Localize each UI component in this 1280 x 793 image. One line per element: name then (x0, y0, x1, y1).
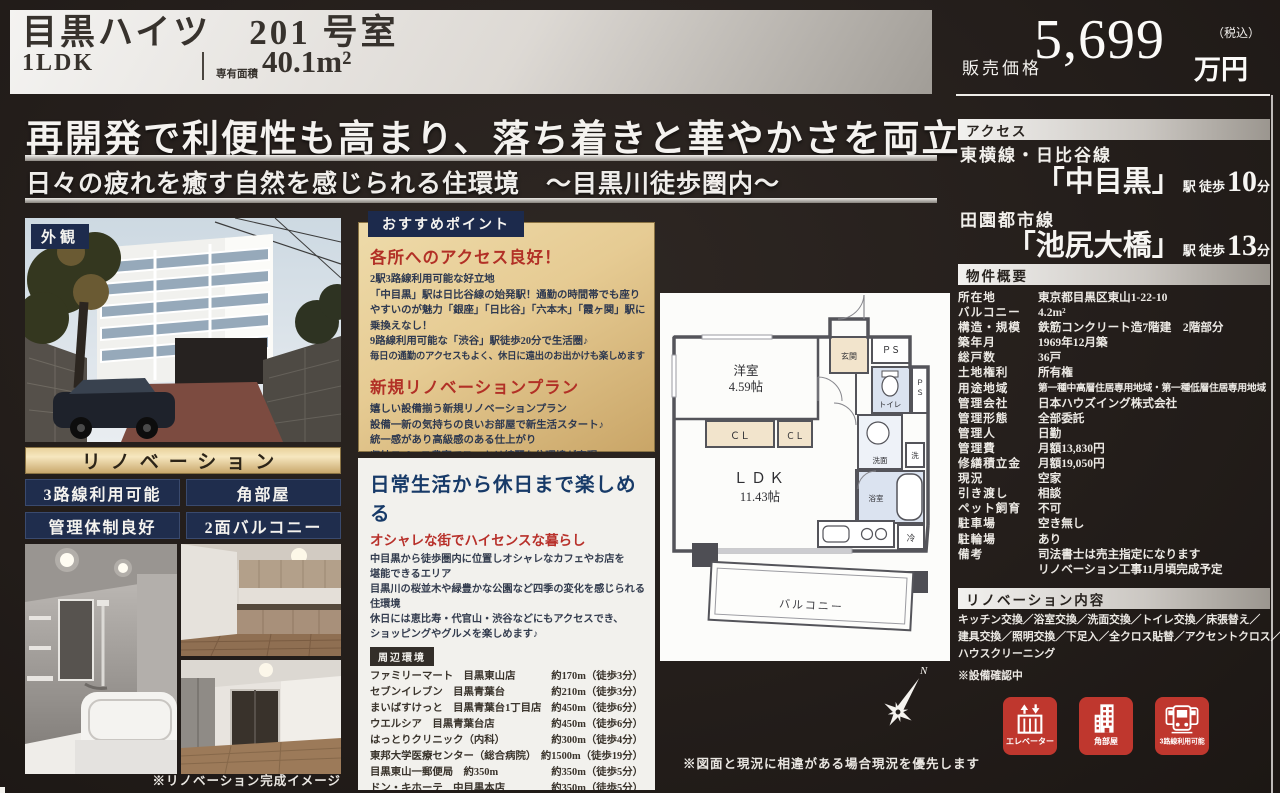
overview-row: 管理人 日勤 (958, 426, 1270, 441)
points-heading-access: 各所へのアクセス良好！ (370, 244, 643, 268)
nearby-row: ファミリーマート 目黒東山店 約170m（徒歩3分） (370, 669, 643, 685)
overview-row: 用途地域 第一種中高層住居専用地域・第一種低層住居専用地域 (958, 381, 1270, 396)
overview-row: 構造・規模 鉄筋コンクリート造7階建 2階部分 (958, 320, 1270, 335)
overview-value: 東京都目黒区東山1-22-10 (1038, 290, 1270, 305)
overview-row: 総戸数 36戸 (958, 350, 1270, 365)
points-tag: おすすめポイント (368, 211, 524, 237)
ldk-label: ＬＤＫ (733, 471, 787, 487)
feature-label: 角部屋 (1094, 736, 1118, 747)
points-line: 「中目黒」駅は日比谷線の始発駅！通勤の時間帯でも座り (370, 288, 643, 304)
overview-value: 36戸 (1038, 350, 1270, 365)
route-station-row: 「中目黒」 駅 徒歩 10 分 (958, 158, 1270, 200)
ldk-size: 11.43帖 (740, 489, 780, 504)
points-line: 統一感があり高級感のある仕上がり (370, 433, 643, 449)
corner-building-icon (1089, 702, 1123, 735)
nearby-row: ウエルシア 目黒青葉台店 約450m（徒歩6分） (370, 717, 643, 733)
bath-label: 浴室 (869, 493, 884, 503)
closet1-label: ＣＬ (730, 431, 750, 442)
overview-label: 総戸数 (958, 350, 1038, 365)
route-station-row: 「池尻大橋」 駅 徒歩 13 分 (958, 222, 1270, 264)
feature-label: エレベーター (1006, 736, 1054, 747)
overview-row: 土地権利 所有権 (958, 365, 1270, 380)
price-tax-note: （税込） (1212, 24, 1260, 41)
kitchen-photo (181, 544, 341, 656)
nearby-name: ウエルシア 目黒青葉台店 (370, 717, 551, 733)
overview-row: 管理費 月額13,830円 (958, 441, 1270, 456)
price-underline (956, 94, 1270, 96)
feature-badges: 3路線利用可能 角部屋 管理体制良好 2面バルコニー (25, 479, 341, 539)
feature-badge: 3路線利用可能 (25, 479, 180, 506)
overview-value: 司法書士は売主指定になります リノベーション工事11月頃完成予定 (1038, 547, 1270, 577)
elevator-icon (1013, 702, 1047, 735)
overview-label: 備考 (958, 547, 1038, 577)
scan-corner-artifact (0, 787, 5, 793)
overview-row: 駐車場 空き無し (958, 516, 1270, 531)
lifestyle-heading: 日常生活から休日まで楽しめる (370, 468, 643, 526)
points-lines-renovation: 嬉しい設備揃う新規リノベーションプラン設備一新の気持ちの良いお部屋で新生活スター… (370, 402, 643, 452)
nearby-row: はっとりクリニック（内科） 約300m（徒歩4分） (370, 733, 643, 749)
overview-row: 築年月 1969年12月築 (958, 335, 1270, 350)
overview-value: 月額13,830円 (1038, 441, 1270, 456)
overview-value: 鉄筋コンクリート造7階建 2階部分 (1038, 320, 1270, 335)
toilet-label: トイレ (879, 400, 902, 409)
lifestyle-subheading: オシャレな街でハイセンスな暮らし (370, 529, 643, 549)
scan-edge-artifact (1271, 95, 1273, 793)
bedroom-photo-illustration (181, 660, 341, 774)
overview-value: 空き無し (1038, 516, 1270, 531)
renovation-line: ※設備確認中 (958, 668, 1276, 685)
renovation-image-caption: ※リノベーション完成イメージ (150, 770, 341, 789)
points-line: 乗換えなし！ (370, 319, 643, 335)
overview-label: 土地権利 (958, 365, 1038, 380)
exterior-photo (25, 218, 341, 442)
overview-label: 管理人 (958, 426, 1038, 441)
feature-badge: 管理体制良好 (25, 512, 180, 539)
exterior-photo-illustration (25, 218, 341, 442)
flyer-page: 目黒ハイツ 201 号室 1LDK 専有面積 40.1m² 販売価格 5,699… (0, 0, 1280, 793)
feature-badge: 2面バルコニー (186, 512, 341, 539)
overview-label: 管理形態 (958, 411, 1038, 426)
overview-label: 用途地域 (958, 381, 1038, 396)
walk-unit: 分 (1257, 240, 1270, 259)
lifestyle-line: 住環境 (370, 597, 643, 612)
feature-corner-room: 角部屋 (1079, 697, 1133, 755)
renovation-lines: キッチン交換／浴室交換／洗面交換／トイレ交換／床張替え／建具交換／照明交換／下足… (958, 612, 1276, 685)
walk-unit: 分 (1257, 176, 1270, 195)
overview-label: 管理会社 (958, 396, 1038, 411)
ps2-label-s: Ｓ (916, 388, 924, 397)
lifestyle-line: 中目黒から徒歩圏内に位置しオシャレなカフェやお店を (370, 552, 643, 567)
closet2-label: ＣＬ (786, 431, 804, 441)
nearby-row: 目黒東山一郵便局 約350m 約350m（徒歩5分） (370, 765, 643, 781)
overview-value: 月額19,050円 (1038, 456, 1270, 471)
price-label: 販売価格 (962, 54, 1042, 79)
access-header: アクセス (958, 119, 1270, 140)
lifestyle-box: 日常生活から休日まで楽しめる オシャレな街でハイセンスな暮らし 中目黒から徒歩圏… (358, 458, 655, 790)
nearby-distance: 約350m（徒歩5分） (551, 765, 643, 781)
walk-label: 駅 徒歩 (1183, 240, 1225, 259)
overview-row: 管理会社 日本ハウズイング株式会社 (958, 396, 1270, 411)
points-line: 収納スペース豊富でスッキリ綺麗な住環境が実現 (370, 449, 643, 453)
renovation-line: 建具交換／照明交換／下足入／全クロス貼替／アクセントクロス／ (958, 629, 1276, 646)
overview-row: 現況 空家 (958, 471, 1270, 486)
nearby-name: セブンイレブン 目黒青葉台 (370, 685, 551, 701)
feature-icon-row: エレベーター 角部屋 (1003, 697, 1209, 755)
compass-icon: N (858, 660, 944, 748)
overview-label: 構造・規模 (958, 320, 1038, 335)
overview-value: 4.2m² (1038, 305, 1270, 320)
points-line: 嬉しい設備揃う新規リノベーションプラン (370, 402, 643, 418)
walk-label: 駅 徒歩 (1183, 176, 1225, 195)
overview-value: あり (1038, 532, 1270, 547)
feature-three-lines: 3路線利用可能 (1155, 697, 1209, 755)
catch-headline: 再開発で利便性も高まり、落ち着きと華やかさを両立 (26, 108, 961, 162)
bathroom-photo (25, 544, 177, 774)
points-lines-access: 2駅3路線利用可能な好立地「中目黒」駅は日比谷線の始発駅！通勤の時間帯でも座りや… (370, 272, 643, 365)
overview-label: 所在地 (958, 290, 1038, 305)
overview-label: ペット飼育 (958, 501, 1038, 516)
nearby-distance: 約450m（徒歩6分） (551, 717, 643, 733)
overview-label: 管理費 (958, 441, 1038, 456)
catch-subline: 日々の疲れを癒す自然を感じられる住環境 ～目黒川徒歩圏内～ (26, 164, 780, 200)
western-room-size: 4.59帖 (729, 379, 763, 394)
overview-value: 所有権 (1038, 365, 1270, 380)
nearby-name: はっとりクリニック（内科） (370, 733, 551, 749)
overview-row: バルコニー 4.2m² (958, 305, 1270, 320)
renovation-header: リノベーション内容 (958, 588, 1270, 609)
overview-label: 駐輪場 (958, 532, 1038, 547)
price-unit: 万円 (1194, 48, 1248, 87)
nearby-name: ファミリーマート 目黒東山店 (370, 669, 551, 685)
overview-label: バルコニー (958, 305, 1038, 320)
overview-table: 所在地 東京都目黒区東山1-22-10 バルコニー 4.2m² 構造・規模 鉄筋… (958, 290, 1270, 577)
overview-label: 修繕積立金 (958, 456, 1038, 471)
renovation-line: ハウスクリーニング (958, 646, 1276, 663)
fridge-label: 冷 (907, 533, 916, 543)
station-name: 「池尻大橋」 (1007, 222, 1181, 264)
lifestyle-lines: 中目黒から徒歩圏内に位置しオシャレなカフェやお店を堪能できるエリア目黒川の桜並木… (370, 552, 643, 642)
overview-row: 駐輪場 あり (958, 532, 1270, 547)
lifestyle-line: ショッピングやグルメを楽しめます♪ (370, 627, 643, 642)
washroom-label: 洗面 (873, 455, 888, 465)
western-room-label: 洋室 (733, 363, 758, 378)
header-divider (202, 52, 204, 80)
subline-underline (25, 198, 937, 203)
nearby-distance: 約210m（徒歩3分） (551, 685, 643, 701)
overview-value: 第一種中高層住居専用地域・第一種低層住居専用地域 (1038, 381, 1270, 396)
points-line: 9路線利用可能な「渋谷」駅徒歩20分で生活圏♪ (370, 334, 643, 350)
exterior-photo-tag: 外観 (31, 224, 89, 249)
overview-row: 修繕積立金 月額19,050円 (958, 456, 1270, 471)
ps1-label: ＰＳ (882, 345, 900, 355)
points-line: 毎日の通勤のアクセスもよく、休日に遠出のお出かけも楽しめます (370, 350, 643, 366)
overview-value: 空家 (1038, 471, 1270, 486)
overview-label: 駐車場 (958, 516, 1038, 531)
overview-row: 備考 司法書士は売主指定になります リノベーション工事11月頃完成予定 (958, 547, 1270, 577)
overview-value: 相談 (1038, 486, 1270, 501)
headline-underline (25, 155, 937, 161)
compass-north-label: N (919, 665, 928, 677)
overview-value: 日勤 (1038, 426, 1270, 441)
nearby-row: セブンイレブン 目黒青葉台 約210m（徒歩3分） (370, 685, 643, 701)
nearby-row: ドン・キホーテ 中目黒本店 約350m（徒歩5分） (370, 781, 643, 790)
nearby-name: 東邦大学医療センター（総合病院） (370, 749, 541, 765)
nearby-name: まいばすけっと 目黒青葉台1丁目店 (370, 701, 551, 717)
nearby-name: ドン・キホーテ 中目黒本店 (370, 781, 551, 790)
train-lines-icon (1165, 702, 1199, 735)
station-name: 「中目黒」 (1036, 158, 1181, 200)
overview-header: 物件概要 (958, 264, 1270, 285)
points-heading-renovation: 新規リノベーションプラン (370, 374, 643, 398)
lifestyle-line: 休日には恵比寿・代官山・渋谷などにもアクセスでき、 (370, 612, 643, 627)
overview-row: ペット飼育 不可 (958, 501, 1270, 516)
nearby-row: まいばすけっと 目黒青葉台1丁目店 約450m（徒歩6分） (370, 701, 643, 717)
overview-row: 所在地 東京都目黒区東山1-22-10 (958, 290, 1270, 305)
points-line: 2駅3路線利用可能な好立地 (370, 272, 643, 288)
overview-row: 引き渡し 相談 (958, 486, 1270, 501)
renovation-banner: リノベーション (25, 447, 341, 474)
walk-minutes: 10 (1227, 165, 1257, 199)
points-line: やすいのが魅力「銀座」「日比谷」「六本木」「霞ヶ関」駅に (370, 303, 643, 319)
overview-label: 引き渡し (958, 486, 1038, 501)
nearby-distance: 約1500m（徒歩19分） (541, 749, 643, 765)
overview-value: 全部委託 (1038, 411, 1270, 426)
nearby-name: 目黒東山一郵便局 約350m (370, 765, 551, 781)
feature-label: 3路線利用可能 (1159, 737, 1204, 746)
nearby-distance: 約170m（徒歩3分） (551, 669, 643, 685)
area-label: 専有面積 (216, 66, 258, 81)
nearby-distance: 約350m（徒歩5分） (551, 781, 643, 790)
bedroom-photo (181, 660, 341, 774)
overview-row: 管理形態 全部委託 (958, 411, 1270, 426)
unit-type: 1LDK (22, 50, 94, 77)
overview-value: 不可 (1038, 501, 1270, 516)
overview-label: 築年月 (958, 335, 1038, 350)
area-value: 40.1m² (262, 44, 351, 80)
lifestyle-line: 目黒川の桜並木や緑豊かな公園など四季の変化を感じられる (370, 582, 643, 597)
points-line: 設備一新の気持ちの良いお部屋で新生活スタート♪ (370, 418, 643, 434)
price-value: 5,699 (1034, 8, 1165, 72)
nearby-tag: 周辺環境 (370, 647, 434, 666)
floor-plan-panel: バルコニー 洋室 4.59帖 玄関 ＰＳ トイレ Ｐ Ｓ ＣＬ ＣＬ 洗面 洗 … (660, 293, 950, 661)
nearby-distance: 約450m（徒歩6分） (551, 701, 643, 717)
overview-label: 現況 (958, 471, 1038, 486)
kitchen-photo-illustration (181, 544, 341, 656)
ps2-label-p: Ｐ (916, 378, 924, 387)
recommended-points-box: 各所へのアクセス良好！ 2駅3路線利用可能な好立地「中目黒」駅は日比谷線の始発駅… (358, 222, 655, 452)
feature-elevator: エレベーター (1003, 697, 1057, 755)
nearby-list: ファミリーマート 目黒東山店 約170m（徒歩3分） セブンイレブン 目黒青葉台… (370, 669, 643, 790)
renovation-line: キッチン交換／浴室交換／洗面交換／トイレ交換／床張替え／ (958, 612, 1276, 629)
lifestyle-line: 堪能できるエリア (370, 567, 643, 582)
feature-badge: 角部屋 (186, 479, 341, 506)
nearby-distance: 約300m（徒歩4分） (551, 733, 643, 749)
walk-minutes: 13 (1227, 229, 1257, 263)
entrance-label: 玄関 (841, 351, 857, 361)
floor-plan-svg: バルコニー 洋室 4.59帖 玄関 ＰＳ トイレ Ｐ Ｓ ＣＬ ＣＬ 洗面 洗 … (660, 293, 950, 661)
overview-value: 1969年12月築 (1038, 335, 1270, 350)
overview-value: 日本ハウズイング株式会社 (1038, 396, 1270, 411)
bathroom-photo-illustration (25, 544, 177, 774)
floor-plan-caption: ※図面と現況に相違がある場合現況を優先します (683, 753, 980, 772)
washer-label: 洗 (911, 450, 919, 460)
nearby-row: 東邦大学医療センター（総合病院） 約1500m（徒歩19分） (370, 749, 643, 765)
